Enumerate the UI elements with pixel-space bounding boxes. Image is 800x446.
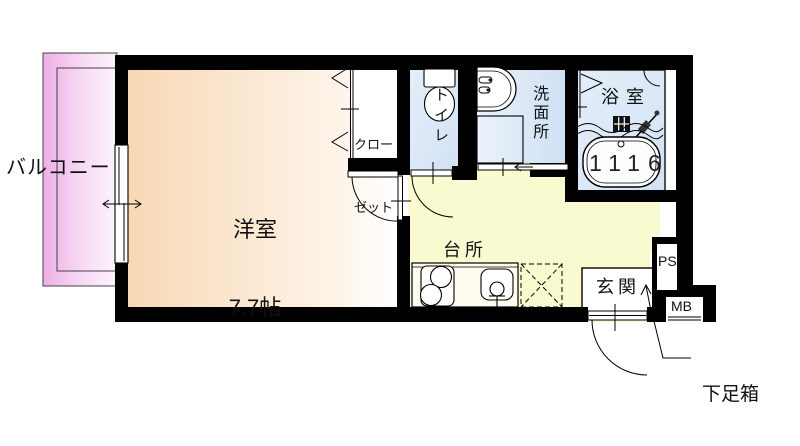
floor-plan: バルコニー 洋室 7.7帖 クロー ゼット トイレ 洗面所 浴室 1116 台所… bbox=[0, 0, 800, 446]
kitchen-label: 台所 bbox=[443, 240, 487, 262]
closet-label-line1: クロー bbox=[354, 134, 393, 155]
wall-closet-toilet bbox=[397, 55, 410, 175]
bathroom-label: 浴室 bbox=[601, 87, 651, 109]
wall-bottom bbox=[115, 307, 588, 322]
entrance-door bbox=[588, 304, 647, 375]
meter-box-label: MB bbox=[671, 298, 692, 315]
wall-left-lower bbox=[115, 263, 128, 310]
shoe-box-note-line1: 下足箱 bbox=[693, 383, 767, 406]
living-room-label: 洋室 7.7帖 bbox=[205, 165, 305, 347]
closet-label-line2: ゼット bbox=[354, 197, 393, 218]
meter-box-grille bbox=[666, 315, 703, 322]
washroom-label: 洗面所 bbox=[529, 85, 548, 142]
bath-size-label: 1116 bbox=[589, 150, 669, 178]
balcony-label: バルコニー bbox=[6, 156, 111, 180]
living-room-size: 7.7帖 bbox=[205, 295, 305, 321]
living-room-name: 洋室 bbox=[205, 217, 305, 243]
wall-bath-bottom bbox=[565, 190, 676, 202]
floor-plan-drawing bbox=[0, 0, 800, 446]
entrance-label: 玄関 bbox=[596, 277, 640, 299]
wall-living-hall bbox=[397, 216, 410, 307]
toilet-label: トイレ bbox=[431, 87, 449, 147]
wall-toilet-washroom bbox=[458, 55, 477, 180]
wall-toilet-door-stub bbox=[452, 166, 467, 180]
pipe-space-label: PS bbox=[658, 253, 677, 270]
washbasin-icon bbox=[477, 67, 516, 111]
shoe-box-note: 下足箱 スペース bbox=[693, 337, 767, 446]
stove-icon bbox=[421, 266, 455, 306]
wall-left-upper bbox=[115, 55, 128, 145]
closet-label: クロー ゼット bbox=[354, 92, 393, 239]
